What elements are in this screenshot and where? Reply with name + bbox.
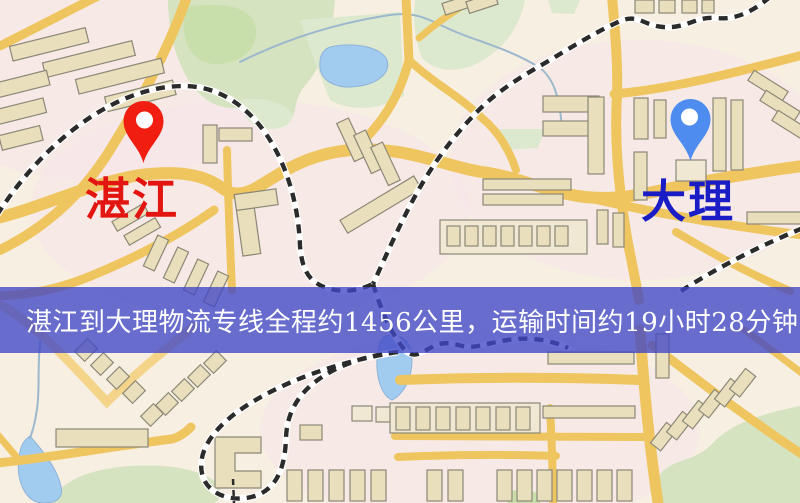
origin-city-label: 湛江 xyxy=(85,177,179,222)
map-screenshot: 湛江 大理 湛江到大理物流专线全程约1456公里，运输时间约19小时28分钟. xyxy=(0,0,800,503)
destination-pin-icon[interactable] xyxy=(666,97,715,163)
route-info-banner: 湛江到大理物流专线全程约1456公里，运输时间约19小时28分钟. xyxy=(0,287,800,353)
destination-city-label: 大理 xyxy=(641,179,735,224)
route-info-text: 湛江到大理物流专线全程约1456公里，运输时间约19小时28分钟. xyxy=(0,302,800,339)
origin-pin-icon[interactable] xyxy=(119,99,168,165)
map-canvas[interactable] xyxy=(0,0,800,503)
